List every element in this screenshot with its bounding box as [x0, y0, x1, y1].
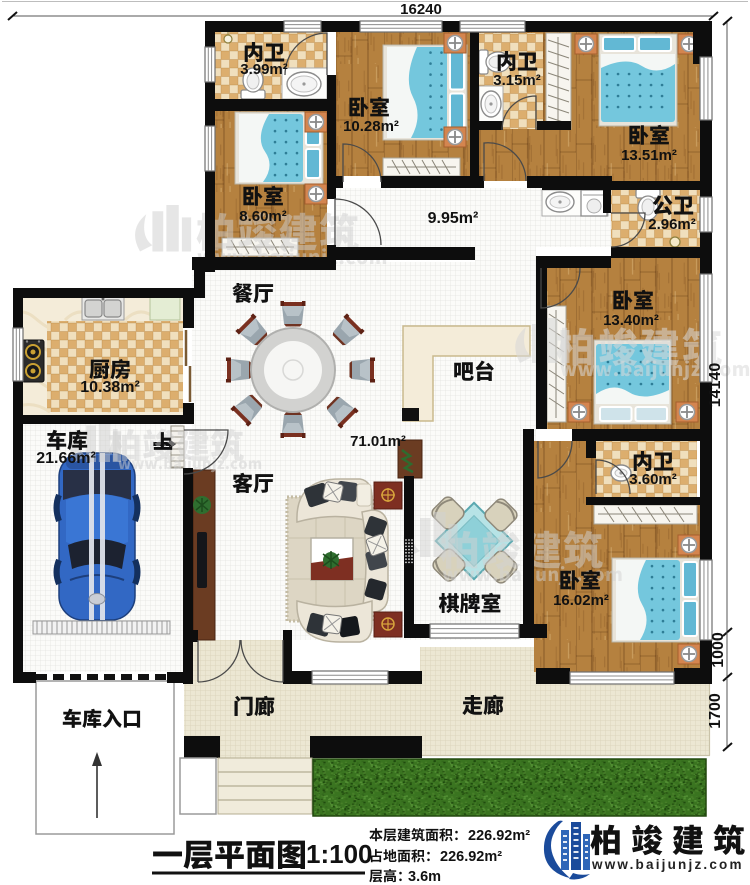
svg-text:1700: 1700 — [707, 693, 724, 729]
svg-text:21.66m²: 21.66m² — [36, 450, 96, 467]
svg-text:13.40m²: 13.40m² — [603, 312, 659, 329]
svg-text:16240: 16240 — [400, 1, 442, 18]
svg-text:3.60m²: 3.60m² — [629, 471, 677, 488]
svg-text:2.96m²: 2.96m² — [648, 216, 696, 233]
svg-text:16.02m²: 16.02m² — [553, 592, 609, 609]
svg-text:3.6m: 3.6m — [408, 869, 441, 885]
svg-text:226.92m²: 226.92m² — [440, 849, 502, 865]
svg-text:1:100: 1:100 — [306, 839, 373, 869]
svg-text:1000: 1000 — [710, 632, 727, 668]
svg-text:14140: 14140 — [707, 363, 724, 408]
svg-text:3.15m²: 3.15m² — [493, 72, 541, 89]
svg-text:10.38m²: 10.38m² — [80, 379, 140, 396]
svg-text:71.01m²: 71.01m² — [350, 433, 406, 450]
svg-text:8.60m²: 8.60m² — [239, 208, 287, 225]
svg-text:10.28m²: 10.28m² — [343, 118, 399, 135]
svg-text:226.92m²: 226.92m² — [468, 828, 530, 844]
svg-text:www.baijunjz.com: www.baijunjz.com — [591, 857, 744, 872]
svg-text:13.51m²: 13.51m² — [621, 147, 677, 164]
svg-text:9.95m²: 9.95m² — [428, 210, 479, 227]
svg-text:3.99m²: 3.99m² — [240, 61, 288, 78]
